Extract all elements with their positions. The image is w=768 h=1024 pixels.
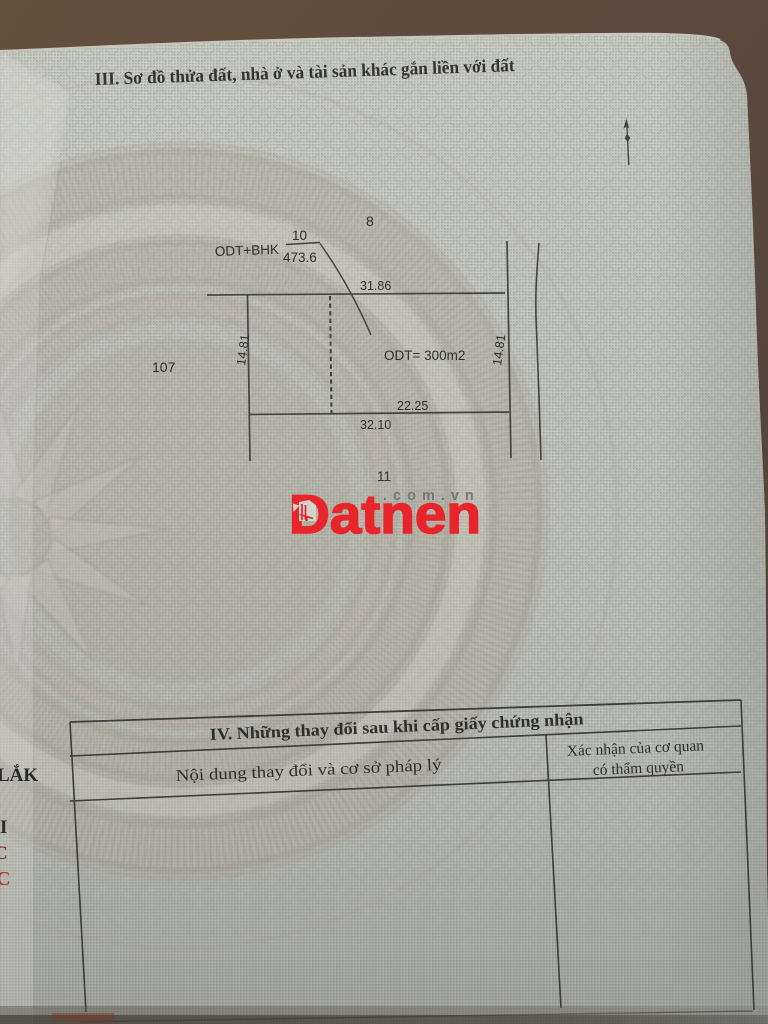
svg-text:C: C [0, 843, 8, 864]
svg-text:473.6: 473.6 [283, 250, 317, 265]
svg-text:11: 11 [377, 469, 391, 484]
svg-text:32.10: 32.10 [360, 418, 391, 432]
svg-text:10: 10 [292, 228, 307, 243]
svg-text:8: 8 [366, 213, 374, 229]
svg-text:22.25: 22.25 [397, 399, 428, 413]
svg-text:Datnen: Datnen [289, 483, 481, 545]
svg-text:LẮK: LẮK [0, 764, 38, 786]
svg-text:31.86: 31.86 [360, 279, 391, 293]
svg-text:ODT= 300m2: ODT= 300m2 [384, 348, 465, 363]
svg-text:C: C [0, 868, 10, 890]
svg-text:I: I [0, 817, 7, 838]
svg-text:107: 107 [152, 359, 176, 375]
svg-text:ODT+BHK: ODT+BHK [215, 242, 280, 259]
